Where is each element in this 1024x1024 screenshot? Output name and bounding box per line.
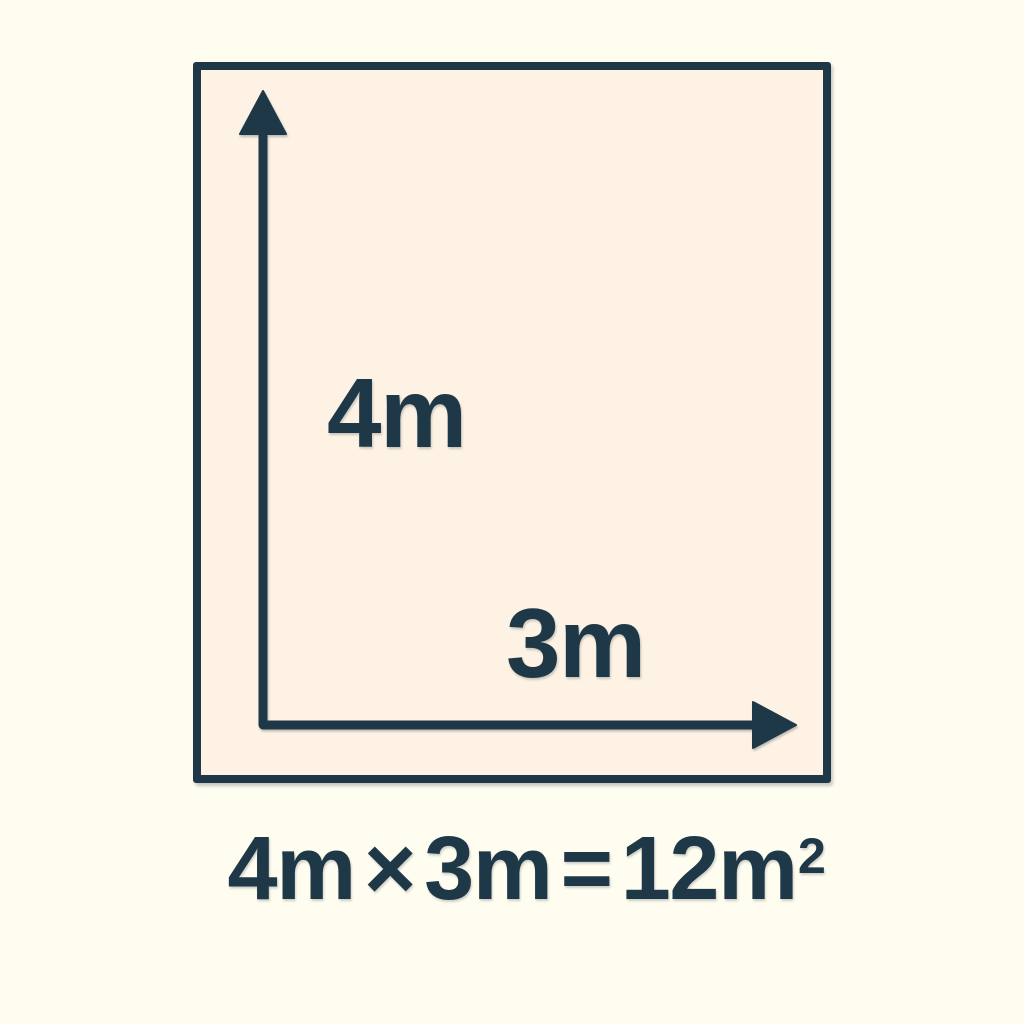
- equals-sign: =: [561, 819, 612, 919]
- multiply-sign: ×: [364, 819, 415, 919]
- diagram-canvas: 4m 3m 4m×3m=12m2: [0, 0, 1024, 1024]
- width-dimension-label: 3m: [506, 594, 645, 692]
- height-dimension-label: 4m: [327, 364, 466, 462]
- formula-result: 12m: [621, 819, 797, 919]
- formula-term1: 4m: [228, 819, 355, 919]
- formula-term2: 3m: [424, 819, 551, 919]
- area-formula: 4m×3m=12m2: [228, 824, 825, 914]
- formula-exponent: 2: [798, 827, 825, 884]
